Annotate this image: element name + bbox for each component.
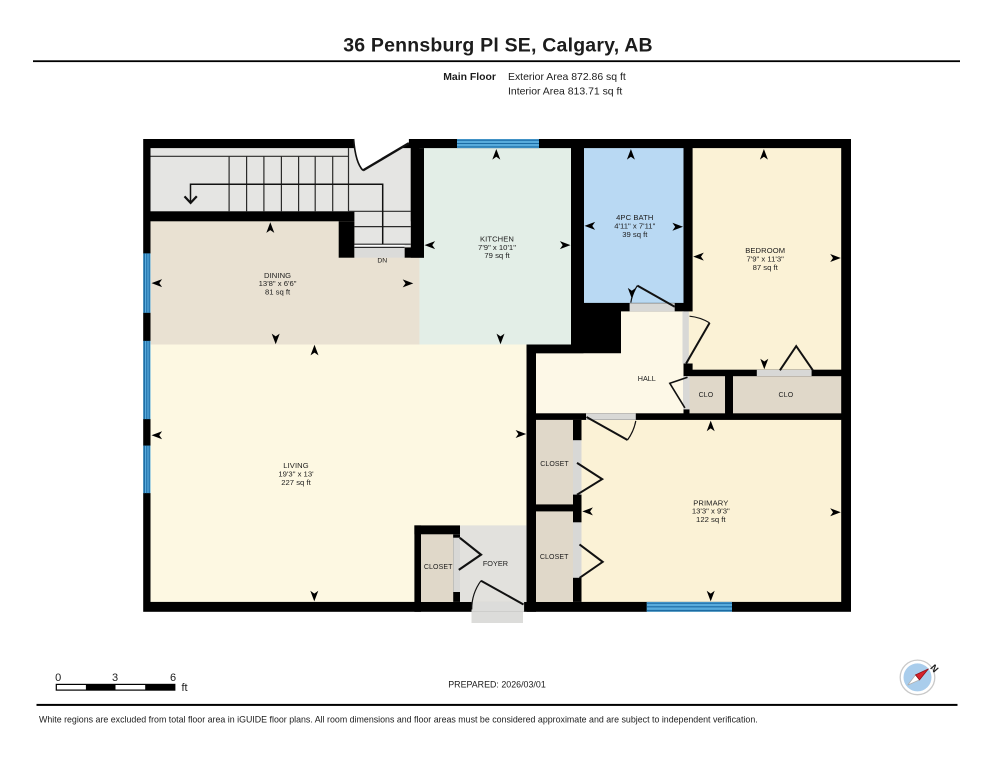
svg-text:81 sq ft: 81 sq ft bbox=[265, 288, 291, 297]
svg-text:CLO: CLO bbox=[779, 392, 794, 399]
svg-text:CLOSET: CLOSET bbox=[540, 461, 569, 468]
svg-text:0: 0 bbox=[55, 672, 61, 684]
svg-text:Main Floor: Main Floor bbox=[443, 72, 496, 83]
svg-text:DN: DN bbox=[377, 258, 387, 265]
svg-text:CLOSET: CLOSET bbox=[424, 564, 453, 571]
svg-text:6: 6 bbox=[170, 672, 176, 684]
svg-text:PREPARED: 2026/03/01: PREPARED: 2026/03/01 bbox=[448, 680, 546, 690]
svg-text:Exterior Area 872.86 sq ft: Exterior Area 872.86 sq ft bbox=[508, 72, 626, 83]
svg-text:227 sq ft: 227 sq ft bbox=[281, 478, 311, 487]
svg-text:36 Pennsburg Pl SE, Calgary, A: 36 Pennsburg Pl SE, Calgary, AB bbox=[343, 35, 653, 57]
svg-text:CLO: CLO bbox=[699, 392, 714, 399]
svg-text:HALL: HALL bbox=[638, 374, 656, 383]
svg-text:White regions are excluded fro: White regions are excluded from total fl… bbox=[39, 714, 758, 724]
svg-text:3: 3 bbox=[112, 672, 118, 684]
svg-text:ft: ft bbox=[182, 682, 188, 694]
svg-text:87 sq ft: 87 sq ft bbox=[753, 263, 779, 272]
svg-text:39 sq ft: 39 sq ft bbox=[622, 230, 648, 239]
svg-text:FOYER: FOYER bbox=[483, 559, 508, 568]
svg-text:Interior Area 813.71 sq ft: Interior Area 813.71 sq ft bbox=[508, 87, 622, 98]
svg-text:79 sq ft: 79 sq ft bbox=[484, 251, 510, 260]
svg-text:CLOSET: CLOSET bbox=[540, 554, 569, 561]
svg-text:122 sq ft: 122 sq ft bbox=[696, 515, 726, 524]
